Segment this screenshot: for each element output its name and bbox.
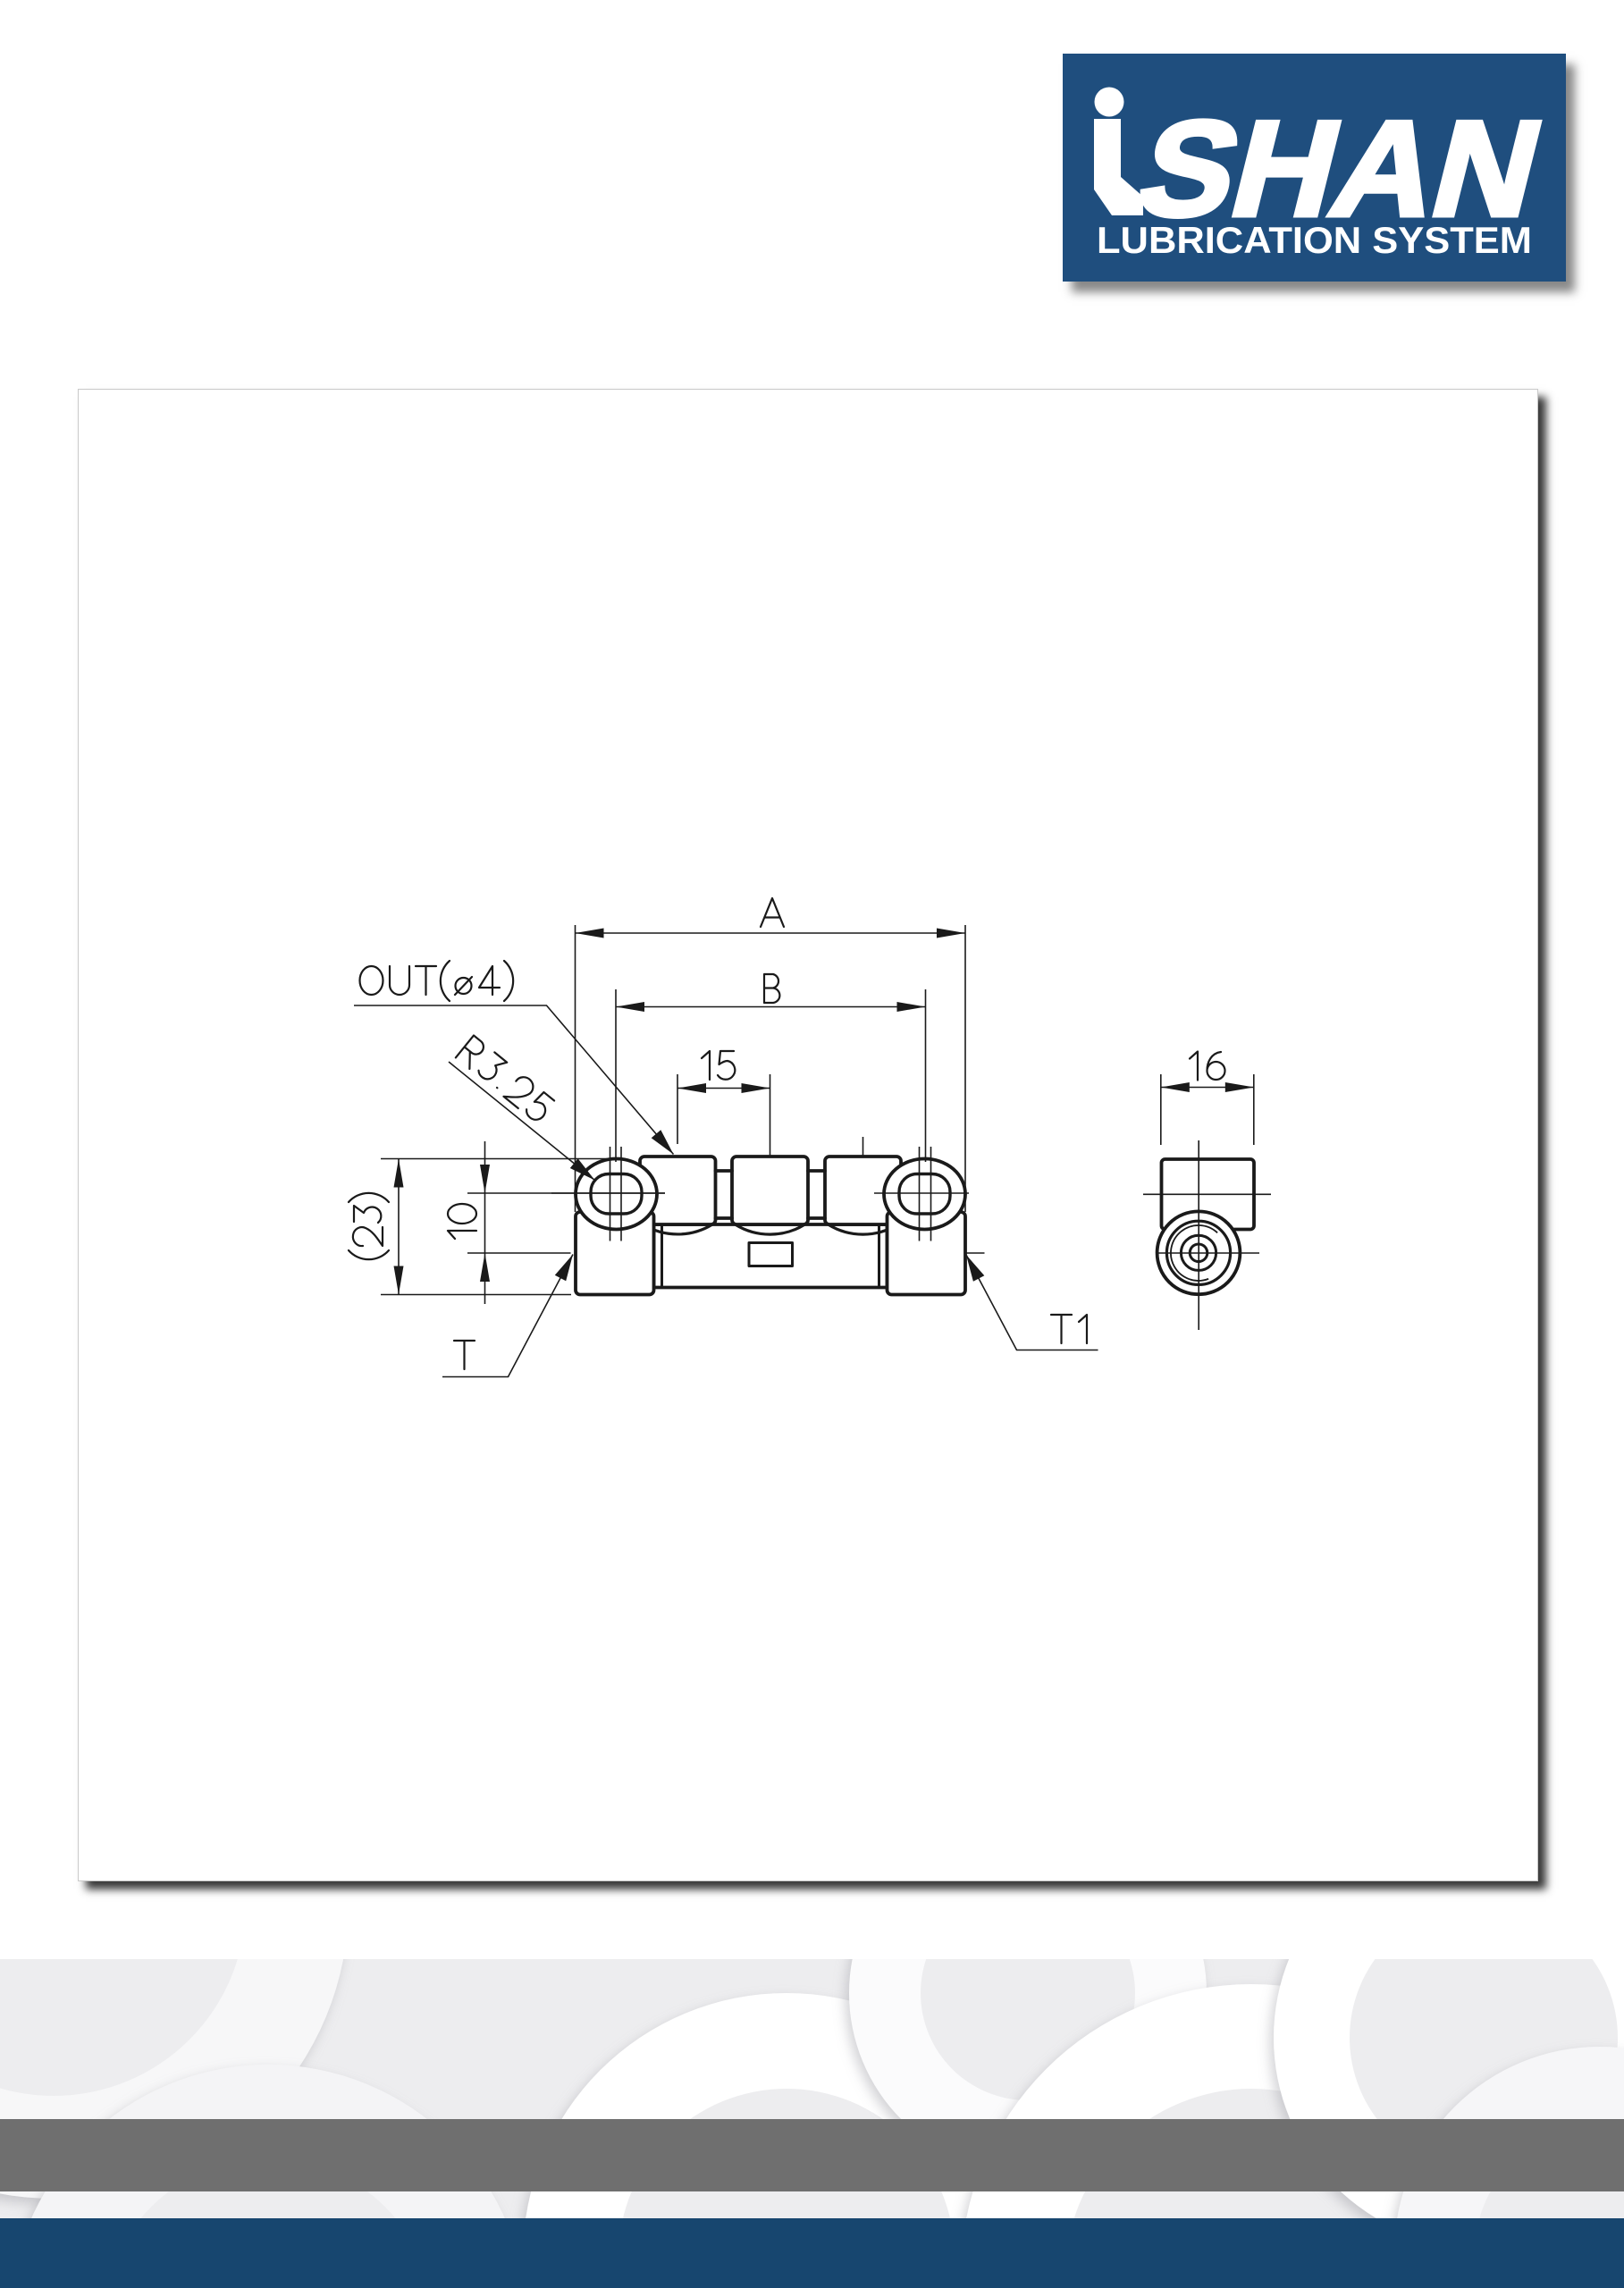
svg-text:LUBRICATION SYSTEM: LUBRICATION SYSTEM <box>1097 219 1532 261</box>
